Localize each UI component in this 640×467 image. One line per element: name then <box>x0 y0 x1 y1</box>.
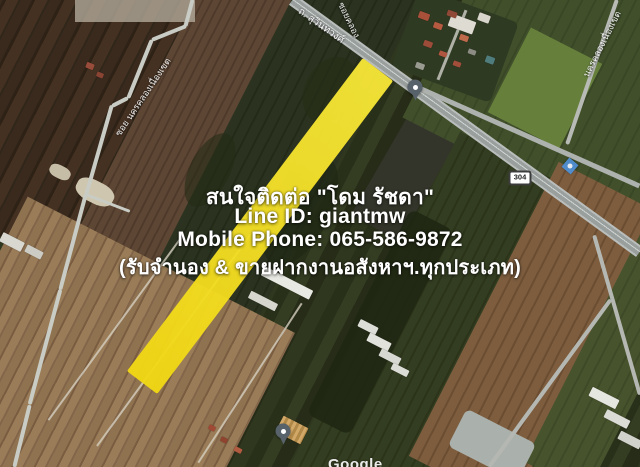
overlay-services: (รับจำนอง & ขายฝากงานอสังหาฯ.ทุกประเภท) <box>0 251 640 283</box>
house <box>233 446 242 454</box>
pin-dot <box>413 85 418 90</box>
map-pin-icon <box>276 424 291 439</box>
poi-dot <box>568 164 573 169</box>
ground-patch <box>75 0 195 22</box>
satellite-map: ถ. สุวินทวงศ์ ซอยคลอง ซอย นครคลองเนื่องเ… <box>0 0 640 467</box>
pin-tail <box>411 93 419 101</box>
map-pin-icon <box>408 80 423 95</box>
pin-tail <box>279 437 287 445</box>
google-watermark: Google <box>328 456 383 467</box>
overlay-line-id: Line ID: giantmw <box>0 205 640 229</box>
pin-dot <box>281 429 286 434</box>
overlay-phone: Mobile Phone: 065-586-9872 <box>0 228 640 252</box>
factory <box>617 431 640 450</box>
